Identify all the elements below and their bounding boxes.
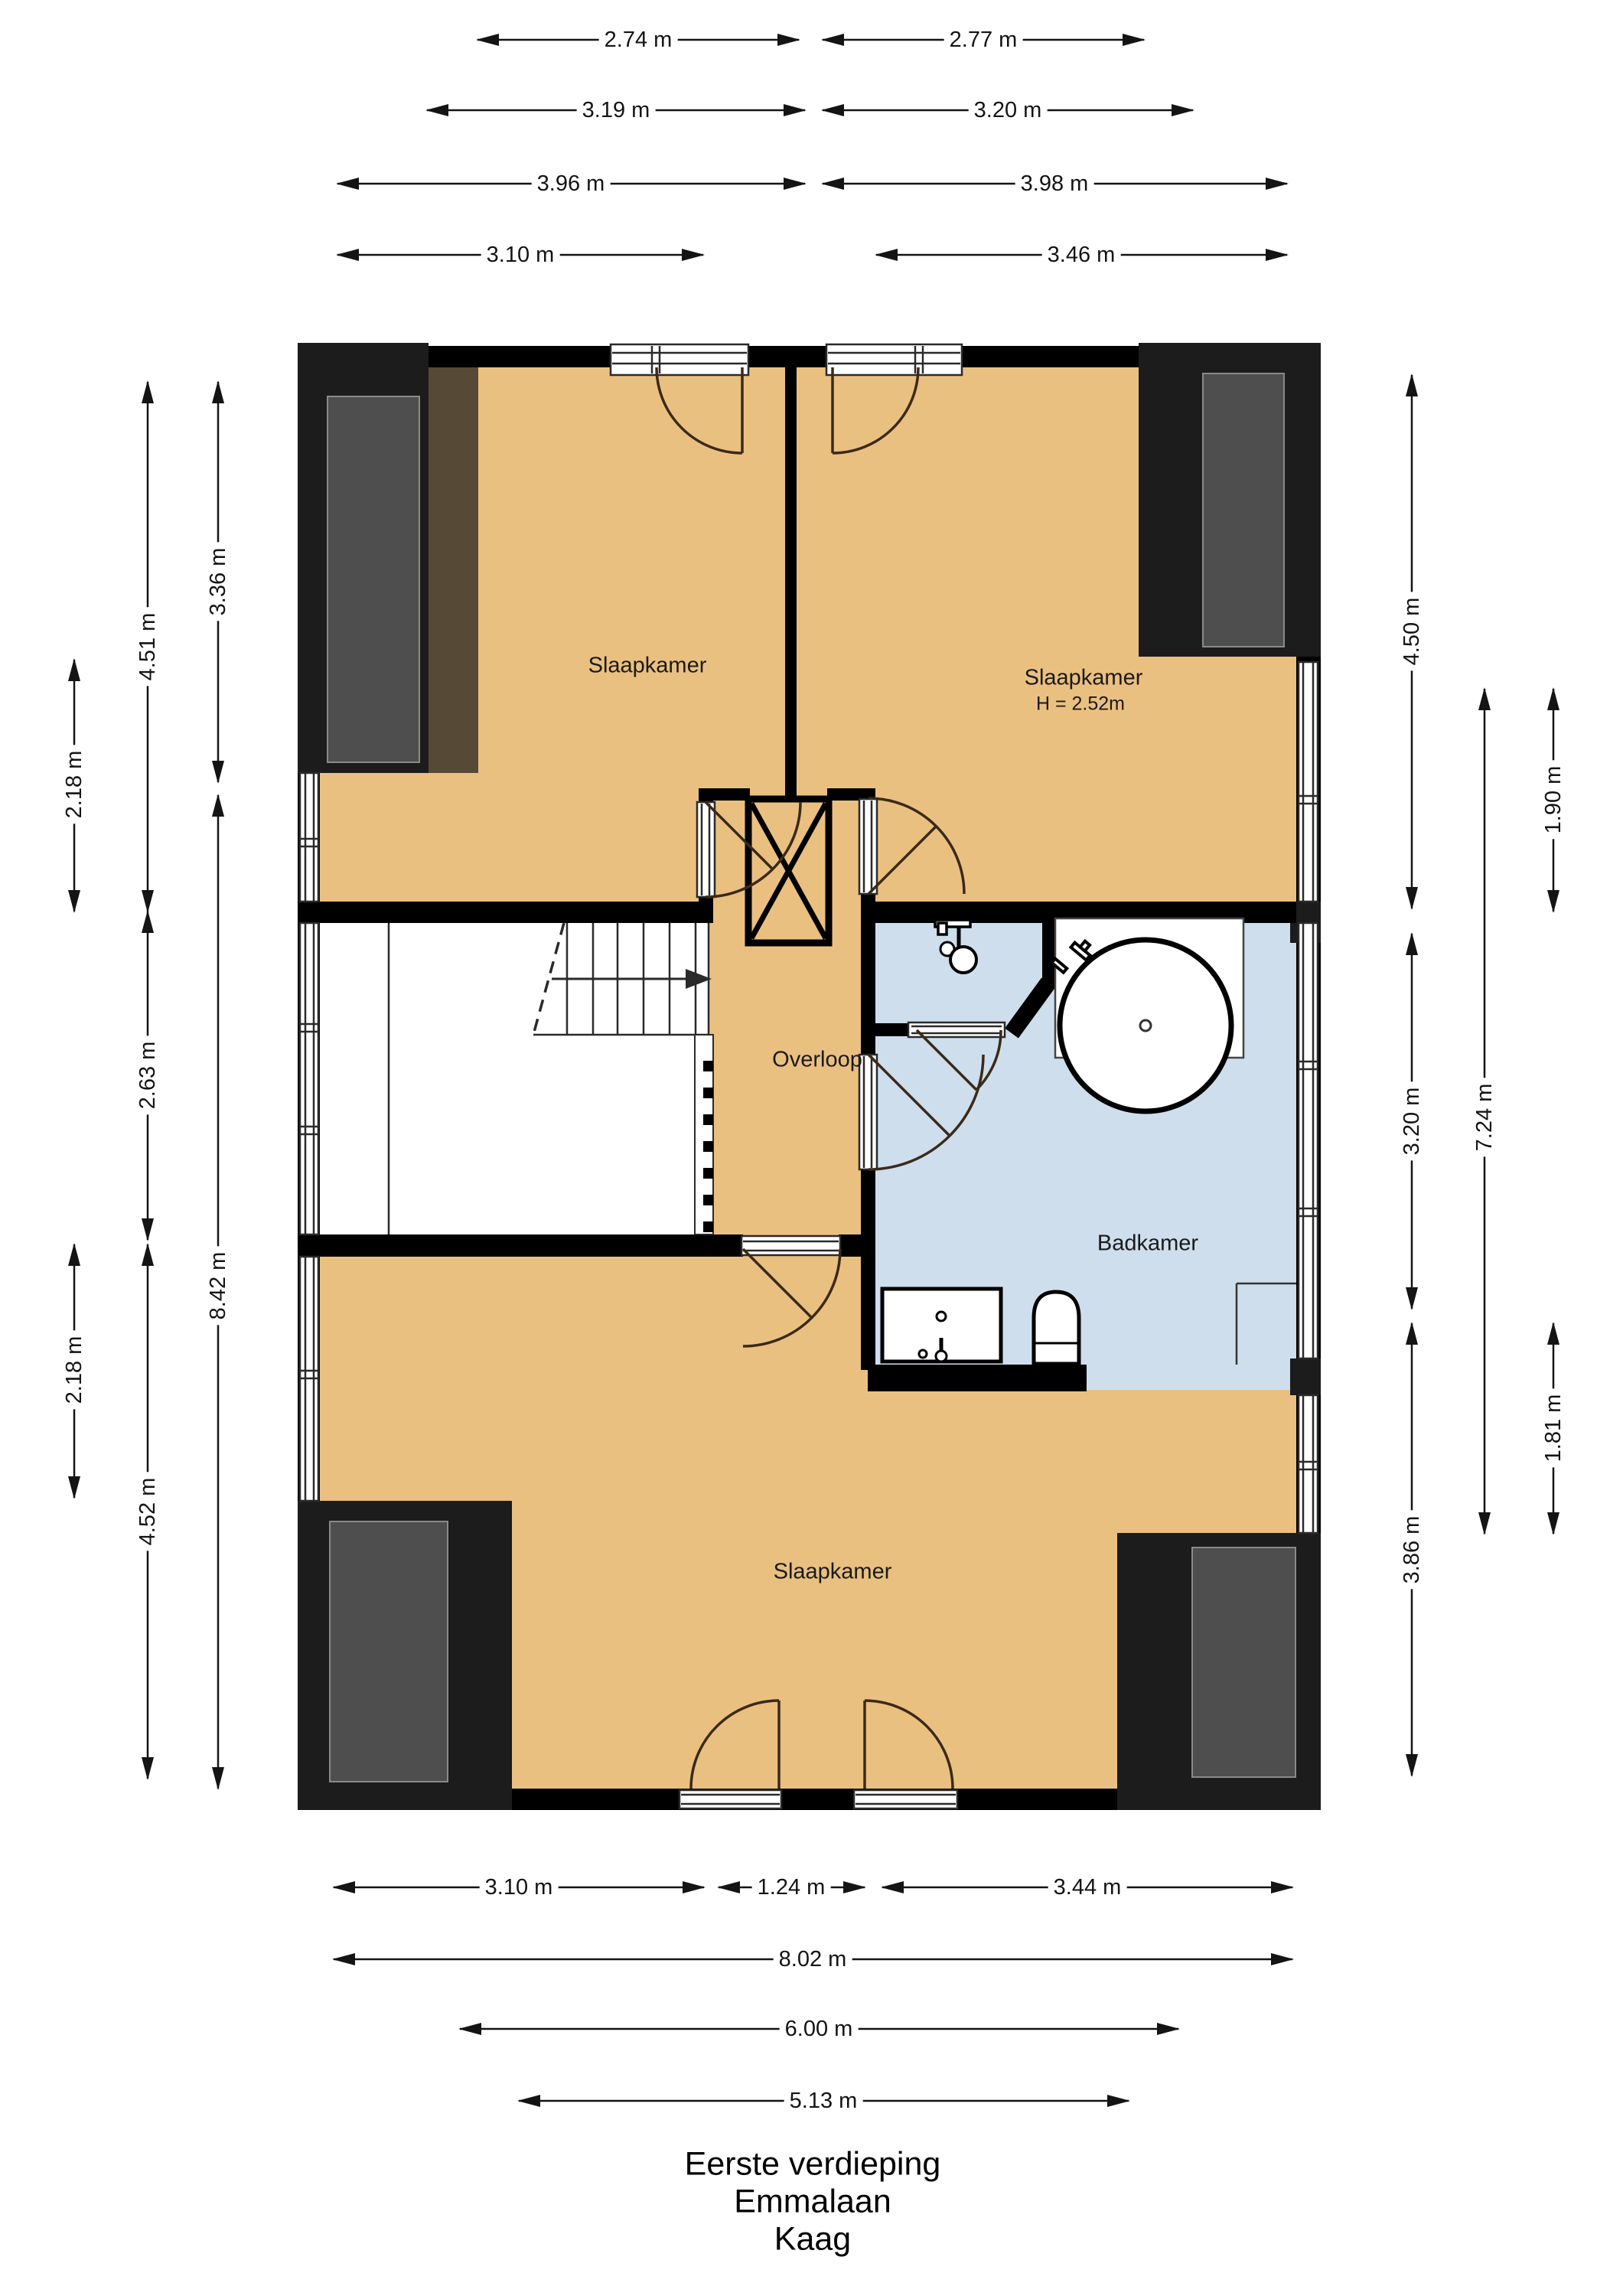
dim-label-left-218b: 2.18 m <box>62 1331 86 1410</box>
dim-label-top-396: 3.96 m <box>532 171 611 196</box>
dim-label-right-181: 1.81 m <box>1541 1389 1566 1468</box>
room-label-bedroom-top-right-height: H = 2.52m <box>1036 693 1125 716</box>
room-label-bedroom-top-right: Slaapkamer <box>1025 666 1143 691</box>
dim-label-left-452: 4.52 m <box>135 1473 160 1551</box>
dim-label-left-451: 4.51 m <box>135 608 160 687</box>
dim-label-top-274: 2.74 m <box>599 28 678 52</box>
plan-title-city: Kaag <box>774 2221 851 2258</box>
plan-title-street: Emmalaan <box>734 2183 891 2221</box>
dim-label-right-724: 7.24 m <box>1472 1078 1497 1157</box>
dim-label-right-386: 3.86 m <box>1400 1511 1424 1590</box>
room-label-bathroom: Badkamer <box>1097 1231 1198 1257</box>
floor-plan-page: 2.74 m 2.77 m 3.19 m 3.20 m 3.96 m 3.98 … <box>0 0 1623 2296</box>
room-label-landing: Overloop <box>772 1048 862 1073</box>
dim-label-top-277: 2.77 m <box>944 28 1023 52</box>
dim-label-bottom-600: 6.00 m <box>780 2017 859 2041</box>
toilet <box>1034 1292 1079 1364</box>
dim-label-bottom-124: 1.24 m <box>752 1875 831 1900</box>
dim-label-bottom-310: 3.10 m <box>480 1875 559 1900</box>
dim-label-left-336: 3.36 m <box>206 543 230 621</box>
dim-label-left-842: 8.42 m <box>206 1247 230 1326</box>
dim-label-bottom-513: 5.13 m <box>784 2089 863 2113</box>
stair-balustrade <box>695 1035 713 1234</box>
dim-label-bottom-344: 3.44 m <box>1048 1875 1127 1900</box>
dim-label-top-319: 3.19 m <box>577 98 656 122</box>
dim-label-left-218a: 2.18 m <box>62 745 86 824</box>
dim-label-bottom-802: 8.02 m <box>774 1947 852 1971</box>
sink <box>882 1289 1001 1362</box>
room-label-bedroom-bottom: Slaapkamer <box>774 1560 892 1585</box>
dim-label-top-346: 3.46 m <box>1042 243 1121 267</box>
dim-label-top-310: 3.10 m <box>481 243 560 267</box>
dim-label-right-320: 3.20 m <box>1400 1082 1424 1161</box>
plan-title-floor: Eerste verdieping <box>685 2146 941 2183</box>
room-label-bedroom-top-left: Slaapkamer <box>588 654 707 679</box>
dim-label-left-263: 2.63 m <box>135 1036 160 1115</box>
dim-label-right-450: 4.50 m <box>1400 592 1424 671</box>
dim-label-right-190: 1.90 m <box>1541 761 1566 840</box>
dim-label-top-398: 3.98 m <box>1015 171 1094 196</box>
dim-label-top-320: 3.20 m <box>969 98 1048 122</box>
